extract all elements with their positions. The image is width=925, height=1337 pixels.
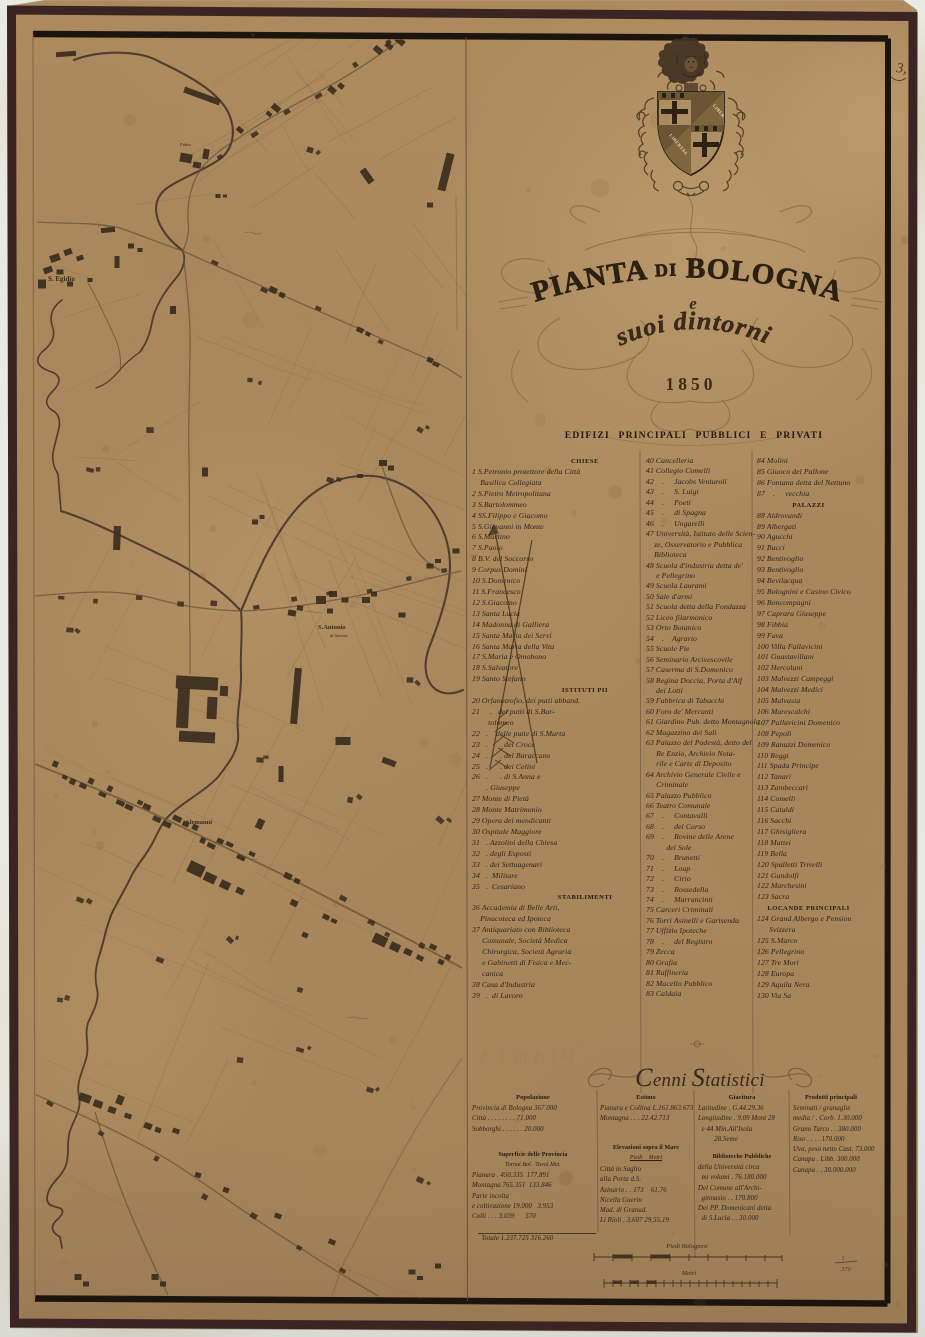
svg-text:PIANTA: PIANTA: [474, 1045, 575, 1070]
svg-text:3,: 3,: [895, 61, 908, 77]
svg-text:di Savena: di Savena: [330, 633, 348, 638]
svg-text:S. Egidio: S. Egidio: [48, 275, 75, 283]
svg-text:1850: 1850: [666, 374, 717, 394]
svg-text:S.Antonio: S.Antonio: [318, 624, 346, 631]
svg-text:Alemanni: Alemanni: [185, 819, 212, 826]
svg-text:Metri: Metri: [681, 1270, 697, 1277]
svg-text:EDIFIZI PRINCIPALI PUBBLICI E: EDIFIZI PRINCIPALI PUBBLICI E PRIVATI: [565, 430, 823, 441]
svg-text:Piedi Bolognesi: Piedi Bolognesi: [665, 1243, 708, 1250]
svg-text:370: 370: [840, 1266, 852, 1273]
svg-text:Fabro: Fabro: [179, 142, 192, 147]
svg-text:1: 1: [841, 1255, 844, 1262]
